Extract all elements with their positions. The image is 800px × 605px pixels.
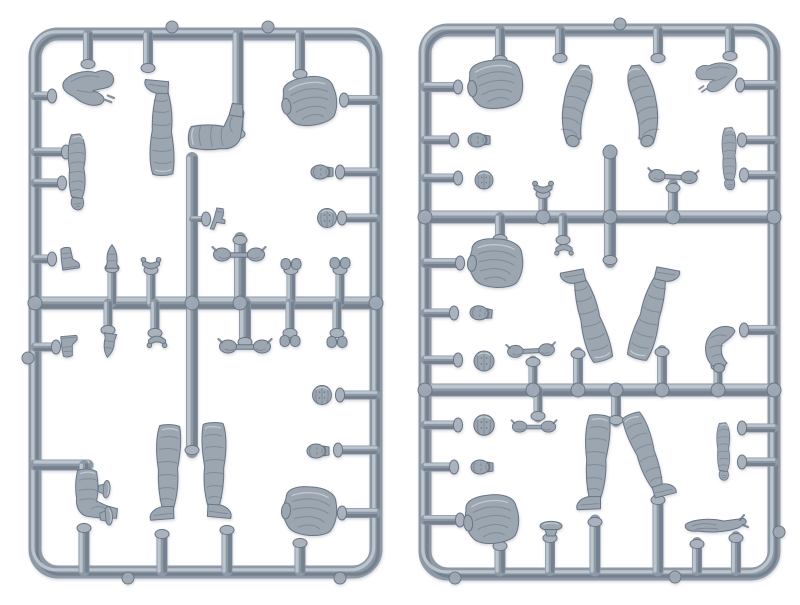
gate-cap — [337, 506, 346, 520]
part-arm_fold — [62, 69, 116, 108]
part-bracket — [147, 336, 167, 347]
part-leg_s — [201, 422, 231, 519]
part-helmet — [313, 386, 332, 405]
part-arm_hang — [68, 134, 85, 210]
gate-cap — [47, 252, 56, 266]
gate-cap — [737, 133, 746, 147]
sprue-left — [22, 21, 383, 584]
gate-cap — [233, 235, 247, 244]
runner-junction — [526, 383, 540, 397]
part-arm_hang — [717, 423, 730, 481]
part-helmet — [475, 171, 493, 189]
part-leg_s — [150, 424, 182, 522]
part-head — [469, 305, 492, 321]
gate-cap — [651, 53, 665, 62]
part-leg_s — [620, 409, 677, 502]
gate-cap — [666, 183, 680, 192]
runner-junction — [185, 296, 199, 310]
frame-nub — [773, 526, 785, 538]
part-boot — [60, 246, 80, 270]
gate-cap — [455, 256, 464, 270]
part-torso — [466, 237, 524, 289]
gate-cap — [455, 513, 464, 527]
part-leg_s — [145, 79, 175, 176]
gate-cap — [185, 445, 199, 454]
frame-nub — [614, 18, 626, 30]
part-arm_point — [685, 515, 748, 532]
runner-junction — [536, 210, 550, 224]
gate-cap — [588, 517, 602, 526]
part-leg_s — [625, 263, 680, 363]
gate-cap — [449, 133, 458, 147]
runner-junction — [603, 210, 617, 224]
gate-cap — [453, 353, 462, 367]
sprue-right — [418, 18, 785, 584]
frame-nub — [22, 352, 34, 364]
gate-cap — [690, 539, 704, 548]
runner-junction — [609, 383, 623, 397]
frame-nub — [449, 572, 461, 584]
part-torso — [280, 484, 339, 537]
gate-cap — [553, 53, 567, 62]
part-grenpair — [511, 420, 556, 432]
gate-cap — [571, 349, 585, 358]
gate-cap — [201, 212, 210, 226]
part-torso — [278, 73, 339, 129]
part-head — [471, 460, 493, 474]
gate-cap — [333, 443, 342, 457]
frame-nub — [334, 572, 346, 584]
gate-cap — [729, 533, 743, 542]
runner-junction — [233, 296, 247, 310]
part-head — [307, 444, 329, 458]
part-wedge — [106, 245, 118, 269]
gate-cap — [57, 176, 66, 190]
gate-cap — [453, 418, 462, 432]
part-helmet — [474, 415, 494, 435]
runner-junction — [767, 383, 781, 397]
gate-cap — [723, 51, 737, 60]
part-arm_pad — [615, 62, 672, 149]
gate-cap — [335, 388, 344, 402]
gate-cap — [81, 59, 95, 68]
runner-junction — [28, 296, 42, 310]
part-bracket — [533, 181, 554, 193]
sprue-photo — [0, 0, 800, 605]
runner-junction — [418, 210, 432, 224]
gate-cap — [526, 357, 540, 366]
gate-cap — [453, 171, 462, 185]
gate-cap — [603, 255, 617, 264]
part-arm_pad — [549, 62, 606, 149]
gate-cap — [47, 89, 56, 103]
part-arm_hang — [722, 127, 736, 189]
gate-cap — [51, 340, 60, 354]
gate-cap — [449, 306, 458, 320]
part-wedge — [101, 333, 117, 358]
gate-cap — [77, 523, 91, 532]
gate-cap — [737, 455, 746, 469]
part-boot — [61, 335, 79, 357]
gate-cap — [531, 411, 545, 420]
part-bracket — [555, 244, 574, 255]
gate-cap — [655, 347, 669, 356]
sprue-photo-canvas — [0, 0, 800, 605]
gate-cap — [141, 63, 155, 72]
gate-cap — [453, 80, 462, 94]
frame-nub — [166, 21, 178, 33]
gate-cap — [155, 529, 169, 538]
part-head — [468, 133, 490, 147]
part-leg_k — [188, 103, 243, 149]
part-head — [311, 165, 333, 179]
frame-nub — [262, 21, 274, 33]
runner-junction — [666, 210, 680, 224]
part-dish — [98, 480, 111, 499]
part-arm_fold — [695, 61, 739, 94]
part-bracket — [141, 257, 161, 268]
runner-junction — [369, 296, 383, 310]
gate-cap — [337, 211, 346, 225]
part-torso — [465, 57, 525, 111]
runner-junction — [767, 210, 781, 224]
part-torso — [461, 493, 520, 546]
gate-cap — [739, 323, 748, 337]
part-pistol — [210, 207, 226, 230]
runner-junction — [571, 383, 585, 397]
part-grenpair — [506, 342, 555, 357]
gate-cap — [220, 525, 234, 534]
runner-junction — [655, 383, 669, 397]
gate-cap — [739, 168, 748, 182]
gate-cap — [735, 78, 744, 92]
gate-cap — [609, 415, 623, 424]
part-helmet — [318, 209, 337, 228]
part-helmet — [474, 351, 494, 371]
part-leg_s — [560, 265, 615, 365]
gate-cap — [335, 165, 344, 179]
frame-nub — [669, 571, 681, 583]
runner-junction — [418, 383, 432, 397]
part-goggles — [327, 337, 347, 348]
part-dish — [540, 521, 562, 536]
runner-junction — [603, 145, 617, 159]
gate-cap — [339, 93, 348, 107]
gate-cap — [449, 460, 458, 474]
frame-nub — [122, 572, 134, 584]
part-arm_bent — [706, 326, 735, 372]
gate-cap — [293, 538, 307, 547]
gate-cap — [737, 421, 746, 435]
runner-junction — [711, 383, 725, 397]
part-leg_s — [577, 414, 612, 512]
gate-cap — [556, 235, 570, 244]
